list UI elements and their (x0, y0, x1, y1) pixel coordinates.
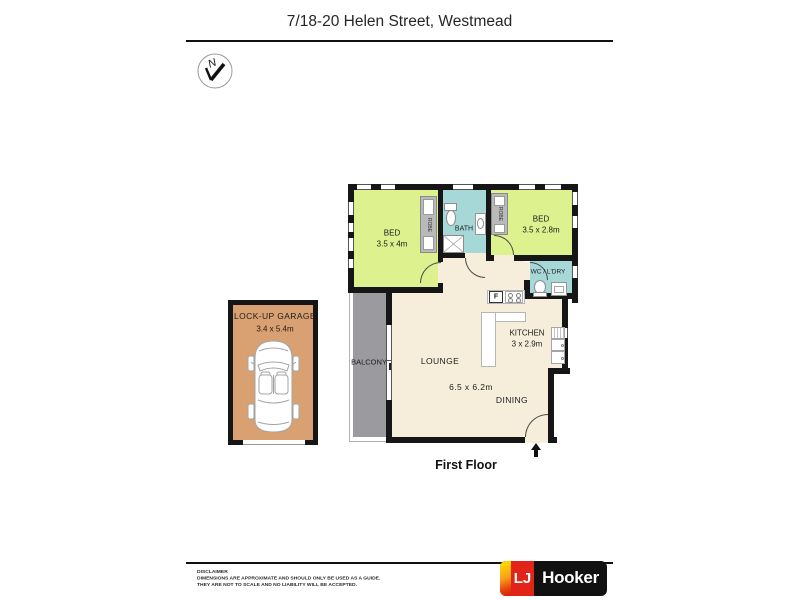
window (572, 216, 578, 228)
basin-bowl (477, 218, 484, 229)
wc-laundry-label: WC / L'DRY (531, 269, 566, 276)
kitchen-label: KITCHEN (509, 329, 544, 338)
toilet-icon (446, 210, 456, 226)
bedroom-2-label: BED (533, 215, 549, 224)
sink-drainer-icon (551, 327, 565, 339)
laundry-tub-bowl (554, 286, 564, 293)
fridge-label: F (494, 294, 498, 301)
window (545, 184, 561, 190)
entry-arrow-stem (534, 450, 538, 457)
lounge-label: LOUNGE (421, 356, 459, 366)
wc-toilet-tank (533, 292, 547, 297)
garage-label: LOCK-UP GARAGE (234, 311, 316, 321)
logo-gradient-stripe (500, 561, 511, 596)
wall (548, 371, 554, 443)
disclaimer-line-1: DIMENSIONS ARE APPROXIMATE AND SHOULD ON… (197, 575, 428, 582)
kitchen-drawer (551, 339, 565, 351)
logo-hooker-text: Hooker (534, 561, 607, 596)
robe-door-panel (423, 199, 434, 215)
window (357, 184, 371, 190)
stove-icon (505, 291, 523, 303)
window (348, 202, 354, 215)
window (348, 238, 354, 251)
window (572, 192, 578, 205)
car-icon (246, 334, 301, 437)
disclaimer-heading: DISCLAIMER (197, 568, 428, 575)
robe-label: ROBE (497, 207, 502, 221)
north-compass-icon: N (195, 51, 235, 91)
wall (514, 255, 578, 261)
logo-lj-box: LJ (511, 561, 534, 596)
robe-label: ROBE (426, 218, 431, 232)
door-opening (494, 255, 514, 261)
ljhooker-logo: LJ Hooker (500, 561, 607, 596)
page-title: 7/18-20 Helen Street, Westmead (186, 13, 613, 31)
wall (486, 255, 494, 261)
window (519, 184, 535, 190)
garage-door-opening (243, 440, 305, 445)
entry-arrow-icon (531, 443, 541, 450)
window (348, 223, 354, 232)
lounge-dining-dims: 6.5 x 6.2m (449, 382, 493, 392)
garage-dims: 3.4 x 5.4m (256, 325, 293, 334)
shower-icon (443, 235, 464, 253)
bedroom-1-label: BED (384, 229, 400, 238)
kitchen-island (481, 312, 496, 367)
wall (348, 287, 443, 293)
window (572, 266, 578, 278)
balcony-label: BALCONY (351, 358, 387, 367)
disclaimer-text: DISCLAIMER DIMENSIONS ARE APPROXIMATE AN… (197, 568, 428, 588)
floorplan-page: 7/18-20 Helen Street, Westmead N (0, 0, 800, 600)
bedroom-1-dims: 3.5 x 4m (377, 240, 408, 249)
header-rule (186, 40, 613, 42)
robe-door-panel (423, 236, 434, 250)
wall (386, 437, 525, 443)
kitchen-drawer (551, 351, 565, 364)
wall (438, 283, 443, 293)
bathroom-label: BATH (455, 226, 473, 233)
kitchen-dims: 3 x 2.9m (512, 340, 543, 349)
bedroom-2-dims: 3.5 x 2.8m (522, 226, 559, 235)
wall (438, 253, 465, 258)
robe-door-panel (494, 196, 505, 206)
dining-label: DINING (496, 395, 528, 405)
window (453, 184, 473, 190)
robe-door-panel (494, 224, 505, 233)
disclaimer-line-2: THEY ARE NOT TO SCALE AND NO LIABILITY W… (197, 581, 428, 588)
window (381, 184, 395, 190)
floor-level-label: First Floor (435, 458, 497, 472)
window (348, 259, 354, 268)
sliding-door-handle (389, 363, 391, 370)
